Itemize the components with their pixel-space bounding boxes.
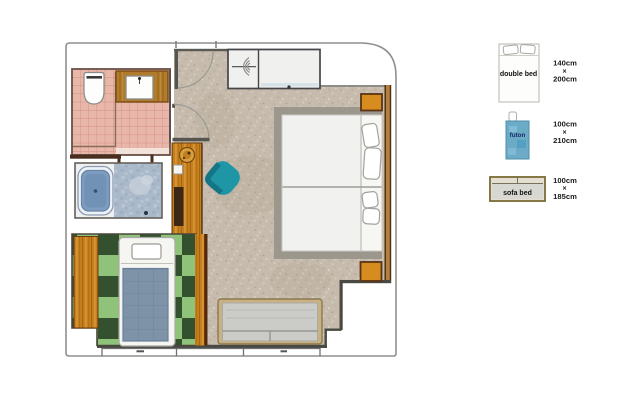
- svg-text:sofa bed: sofa bed: [503, 190, 532, 197]
- svg-text:futon: futon: [510, 132, 526, 139]
- svg-text:200cm: 200cm: [553, 75, 577, 84]
- svg-text:210cm: 210cm: [553, 136, 577, 145]
- svg-text:double bed: double bed: [500, 71, 537, 78]
- svg-text:100cm: 100cm: [553, 176, 577, 185]
- svg-text:140cm: 140cm: [553, 59, 577, 68]
- svg-text:100cm: 100cm: [553, 120, 577, 129]
- svg-text:185cm: 185cm: [553, 192, 577, 201]
